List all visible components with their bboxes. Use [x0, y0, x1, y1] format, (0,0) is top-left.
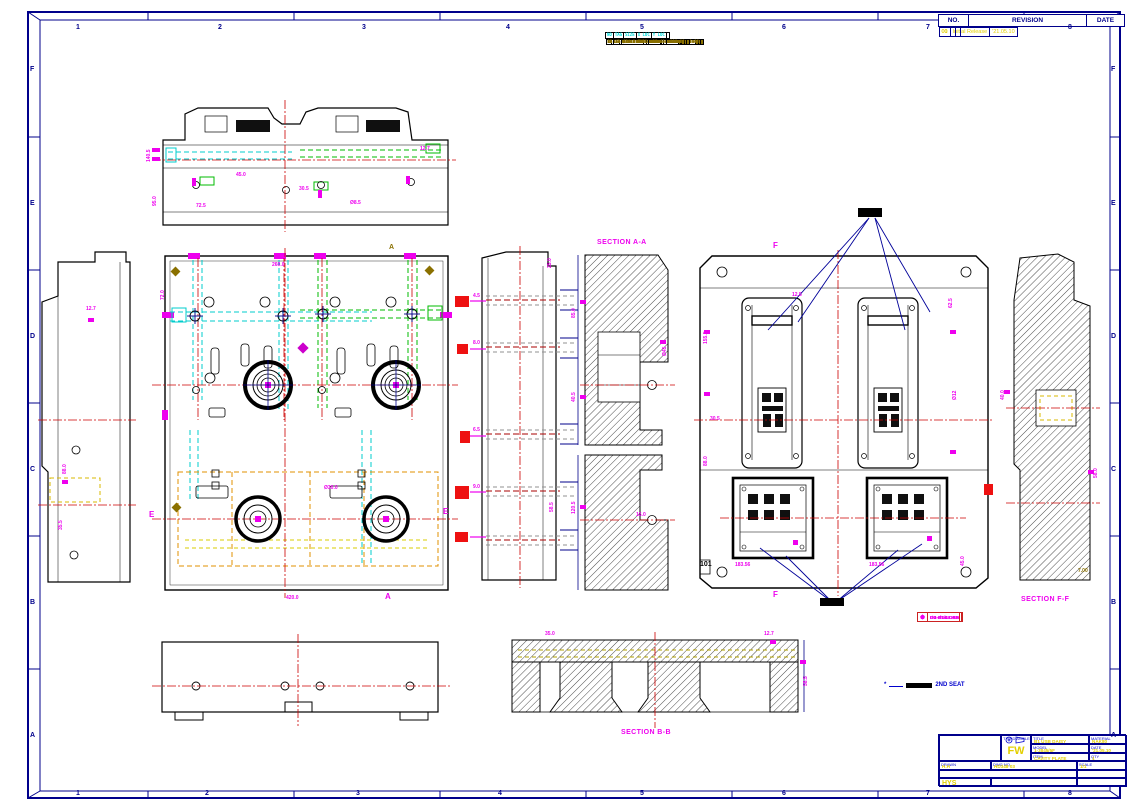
zone-number: 5	[640, 24, 644, 31]
zone-number: 3	[362, 24, 366, 31]
dimension-text: 120.5	[571, 501, 577, 514]
dimension-text: 88.0	[703, 456, 709, 466]
dimension-text: Ø45	[662, 347, 668, 356]
zone-number: 8	[1068, 790, 1072, 797]
zone-letter: B	[1111, 599, 1116, 606]
section-aa-label: SECTION A-A	[597, 239, 647, 246]
col-size: SIZE	[624, 33, 637, 39]
dimension-text: A	[389, 244, 394, 251]
col-band	[666, 33, 669, 39]
dimension-text: 140.5	[146, 149, 152, 162]
rev-col-no: NO.	[939, 15, 969, 27]
dimension-text: Ø12	[952, 391, 958, 400]
revision-table: NO. REVISION DATE 00 Initial Release '21…	[938, 14, 1125, 27]
zone-number: 4	[498, 790, 502, 797]
section-ff-label: SECTION F-F	[1021, 596, 1069, 603]
dimension-text: 6.5	[473, 427, 480, 433]
dimension-text: E	[443, 507, 448, 516]
section-bb-label: SECTION B-B	[621, 729, 671, 736]
third-angle-projection-icon	[1002, 736, 1028, 744]
dimension-text: F	[773, 590, 778, 599]
dimension-text: 58.0	[1093, 468, 1099, 478]
drawing-note: * 2ND SEAT	[884, 682, 965, 688]
dimension-text: 72.5	[196, 203, 206, 209]
zone-number: 4	[506, 24, 510, 31]
redacted-label	[858, 208, 882, 217]
dimension-text: A	[385, 592, 391, 601]
zone-number: 1	[76, 24, 80, 31]
dimension-text: 62.5	[948, 298, 954, 308]
legend-row: ⊙ DB-Ø1/4 GAS	[917, 612, 962, 622]
dimension-text: 183.56	[735, 562, 750, 568]
note-text: 2ND SEAT	[935, 682, 964, 688]
dimension-text: 8.0	[473, 340, 480, 346]
zone-letter: E	[1111, 200, 1116, 207]
view-front-main	[152, 248, 458, 598]
plate-mark: FW	[1007, 745, 1024, 757]
legend-symbol-icon: ⊙	[918, 613, 928, 622]
view-right-main	[694, 218, 994, 602]
hole-chart-header: NO TAG SIZE X LOC Y LOC	[606, 33, 670, 39]
projection-cell: THIRD ANGLE FW	[1001, 735, 1031, 761]
dimension-text: 85.0	[571, 308, 577, 318]
drawing-sheet: NO TAG SIZE X LOC Y LOC 1 A1 Ø8.5 THRU -…	[0, 0, 1136, 812]
dimension-text: 12.5	[792, 292, 802, 298]
zone-number: 8	[1068, 24, 1072, 31]
col-x: X LOC	[636, 33, 651, 39]
view-section-ff	[1004, 254, 1100, 580]
dimension-text: 12.7	[420, 146, 430, 152]
zone-letter: A	[30, 732, 35, 739]
zone-number: 2	[218, 24, 222, 31]
drawing-linework	[0, 0, 1136, 812]
zone-letter: F	[1111, 66, 1115, 73]
redacted-label	[820, 598, 844, 606]
dimension-text: Ø30.0	[324, 485, 338, 491]
bore-upper-left	[243, 360, 293, 410]
legend-text: DB-Ø1/4 GAS	[928, 613, 962, 622]
dimension-text: 9.0	[473, 484, 480, 490]
dimension-text: 420.0	[286, 595, 299, 601]
zone-number: 1	[76, 790, 80, 797]
view-bottom-plan	[152, 634, 450, 726]
note-redacted-bar	[906, 683, 932, 688]
dimension-text: 40.0	[1000, 390, 1006, 400]
dimension-text: 95.0	[152, 196, 158, 206]
view-section-bb	[512, 632, 806, 728]
view-section-aa	[578, 255, 675, 590]
dimension-text: 58.5	[549, 502, 555, 512]
hole-chart-row: 32 K2 Ø20.0 THRU +12.48 +118.88	[606, 39, 690, 46]
dimension-text: 35.0	[545, 631, 555, 637]
zone-letter: B	[30, 599, 35, 606]
dimension-text: 88.0	[62, 464, 68, 474]
zone-number: 5	[640, 790, 644, 797]
zone-letter: D	[1111, 333, 1116, 340]
zone-letter: D	[30, 333, 35, 340]
col-y: Y LOC	[651, 33, 666, 39]
dimension-text: 183.56	[869, 562, 884, 568]
zone-number: 6	[782, 790, 786, 797]
zone-number: 6	[782, 24, 786, 31]
dimension-text: E	[149, 510, 154, 519]
view-left-side	[38, 252, 136, 582]
zone-number: 7	[926, 24, 930, 31]
dimension-text: Ø8.5	[350, 200, 361, 206]
dimension-text: F	[773, 241, 778, 250]
company-mark: HYS	[940, 779, 990, 787]
dimension-text: 35.5	[58, 520, 64, 530]
dimension-text: 12.7	[764, 631, 774, 637]
dimension-text: 16.0	[636, 512, 646, 518]
dimension-text: 45.0	[236, 172, 246, 178]
title-block-blank-cell	[939, 735, 1001, 761]
dimension-text: 25.0	[547, 258, 553, 268]
dimension-text: 40.5	[571, 392, 577, 402]
cavity-channel	[742, 298, 802, 468]
hole-chart-table: NO TAG SIZE X LOC Y LOC 1 A1 Ø8.5 THRU -…	[605, 32, 670, 39]
dimension-text: 30.5	[299, 186, 309, 192]
col-tag: TAG	[613, 33, 623, 39]
dimension-text: 12.7	[86, 306, 96, 312]
dimension-text: 58.5	[803, 676, 809, 686]
dimension-text: 72.0	[160, 290, 166, 300]
zone-number: 3	[356, 790, 360, 797]
dimension-text: 45.0	[960, 556, 966, 566]
zone-number: 7	[926, 790, 930, 797]
note-star: *	[884, 682, 886, 688]
revision-row: 01	[939, 27, 961, 37]
cavity-channel	[858, 298, 918, 468]
title-block: THIRD ANGLE FW TITLEB1 USB DAISY MATERIA…	[938, 734, 1126, 786]
zone-letter: E	[30, 200, 35, 207]
view-top-plan	[152, 100, 456, 232]
dimension-text: 260.0	[272, 262, 285, 268]
dimension-text: 4.5	[473, 293, 480, 299]
dimension-text: 155.5	[703, 331, 709, 344]
zone-letter: A	[1111, 732, 1116, 739]
zone-number: 2	[205, 790, 209, 797]
zone-letter: C	[1111, 466, 1116, 473]
dimension-text: 7.00	[1078, 568, 1088, 574]
detail-balloon-101: 101	[700, 561, 712, 568]
dimension-text: 30.5	[710, 416, 720, 422]
zone-letter: C	[30, 466, 35, 473]
zone-letter: F	[30, 66, 34, 73]
rev-col-date: DATE	[1087, 15, 1125, 27]
note-underline	[889, 683, 903, 687]
